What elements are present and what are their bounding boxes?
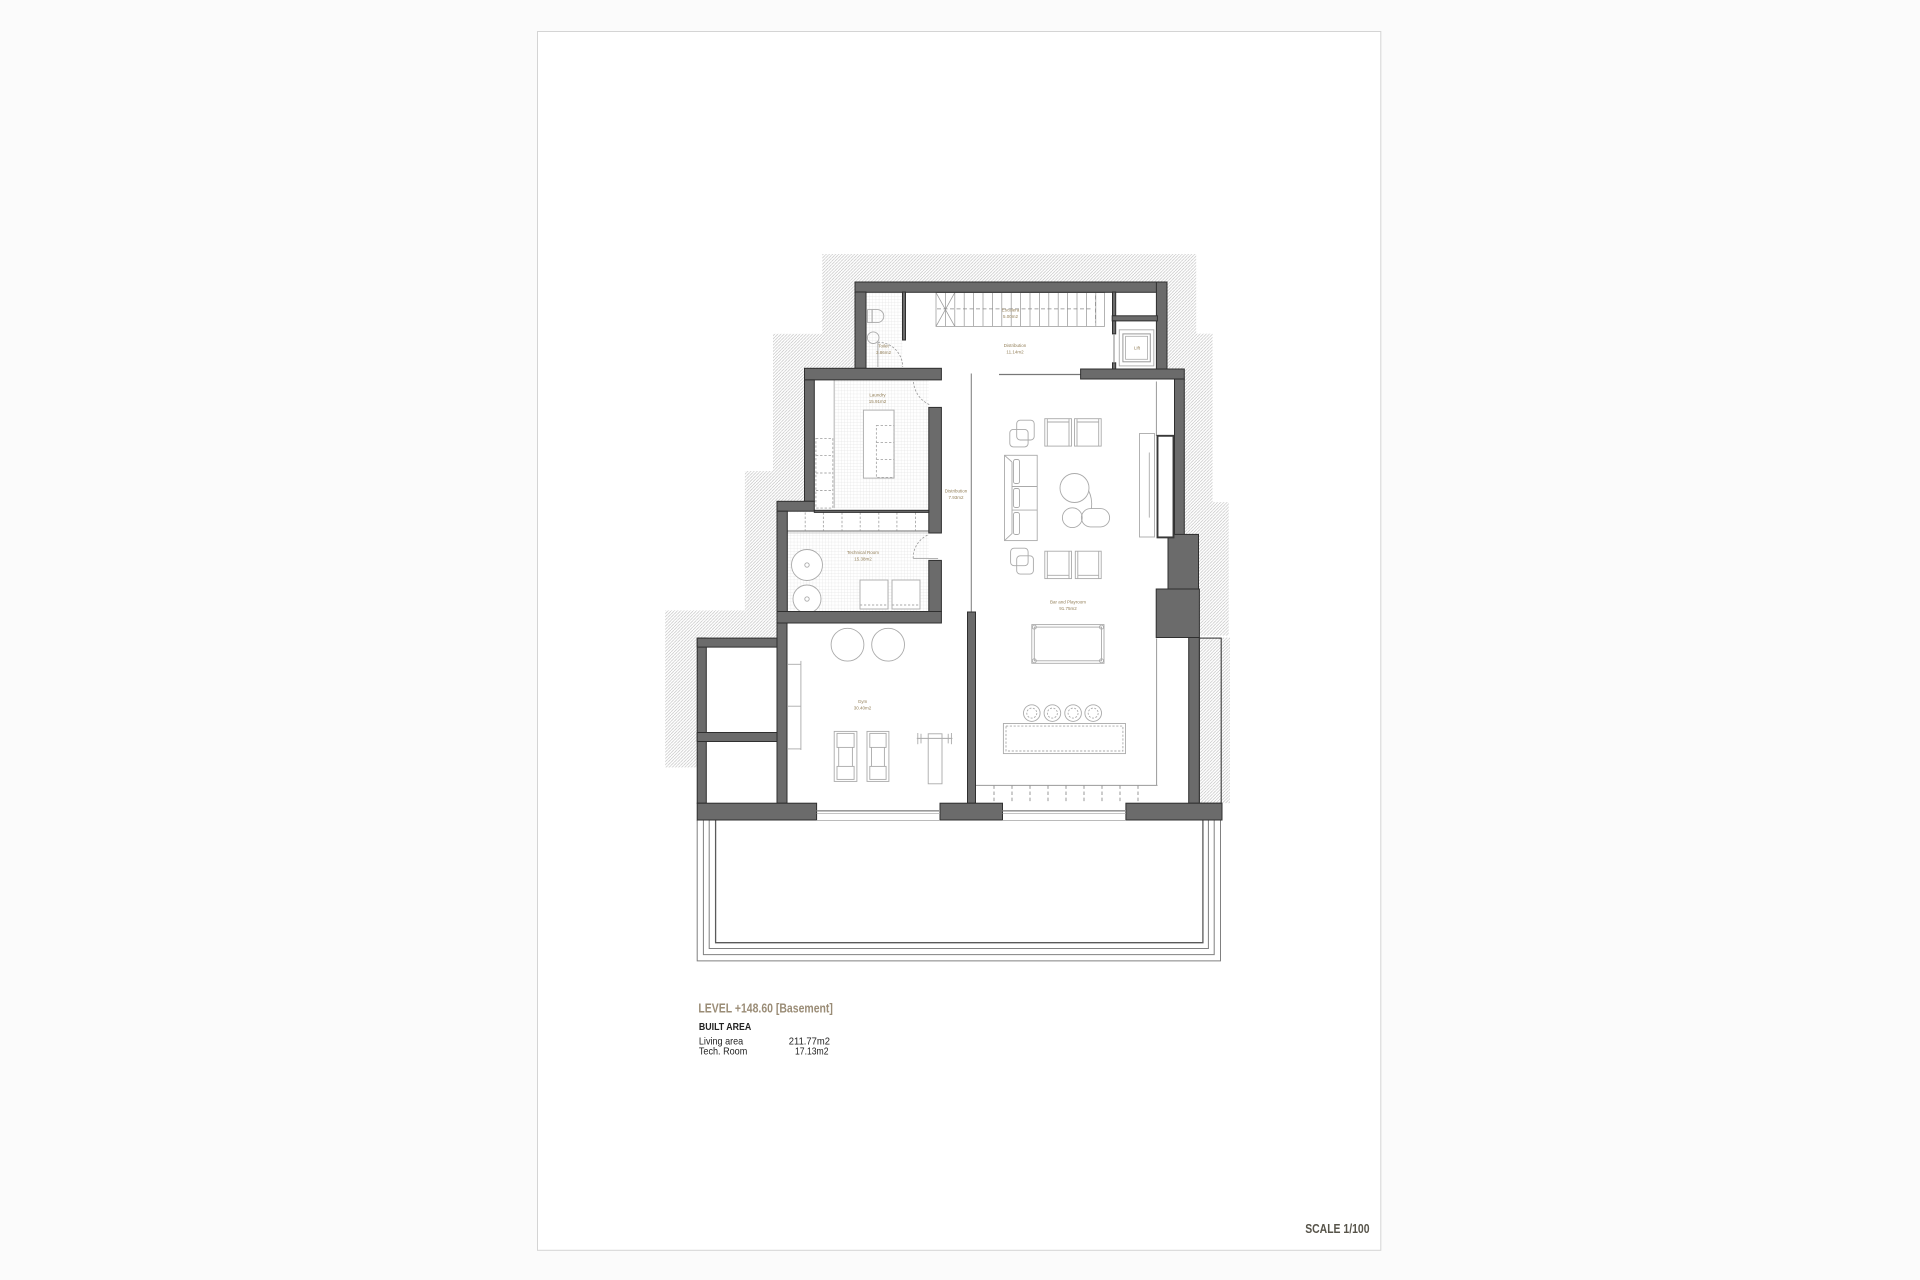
svg-text:15.38m2: 15.38m2 xyxy=(854,557,872,562)
svg-text:Toilet: Toilet xyxy=(878,344,889,349)
svg-text:15.91m2: 15.91m2 xyxy=(869,399,887,404)
svg-text:7.93m2: 7.93m2 xyxy=(948,495,964,500)
svg-text:3.86m2: 3.86m2 xyxy=(876,350,892,355)
svg-text:5.00m2: 5.00m2 xyxy=(1003,314,1019,319)
svg-text:Distribution: Distribution xyxy=(1004,343,1027,348)
svg-text:Gym: Gym xyxy=(858,699,868,704)
svg-text:Bar and Playroom: Bar and Playroom xyxy=(1050,600,1086,605)
svg-text:BUILT AREA: BUILT AREA xyxy=(699,1021,752,1033)
svg-text:Laundry: Laundry xyxy=(869,393,886,398)
svg-text:91.75m2: 91.75m2 xyxy=(1059,606,1077,611)
svg-text:LEVEL +148.60 [Basement]: LEVEL +148.60 [Basement] xyxy=(698,1001,833,1016)
svg-text:Technical Room: Technical Room xyxy=(847,550,879,555)
svg-text:30.40m2: 30.40m2 xyxy=(854,706,872,711)
svg-text:Escalera: Escalera xyxy=(1002,308,1020,313)
svg-text:Lift: Lift xyxy=(1134,346,1141,351)
svg-text:11.14m2: 11.14m2 xyxy=(1006,350,1024,355)
svg-text:SCALE 1/100: SCALE 1/100 xyxy=(1305,1222,1369,1236)
svg-text:Distribution: Distribution xyxy=(945,489,968,494)
svg-text:Tech. Room: Tech. Room xyxy=(699,1046,748,1058)
svg-text:17.13m2: 17.13m2 xyxy=(795,1046,829,1058)
